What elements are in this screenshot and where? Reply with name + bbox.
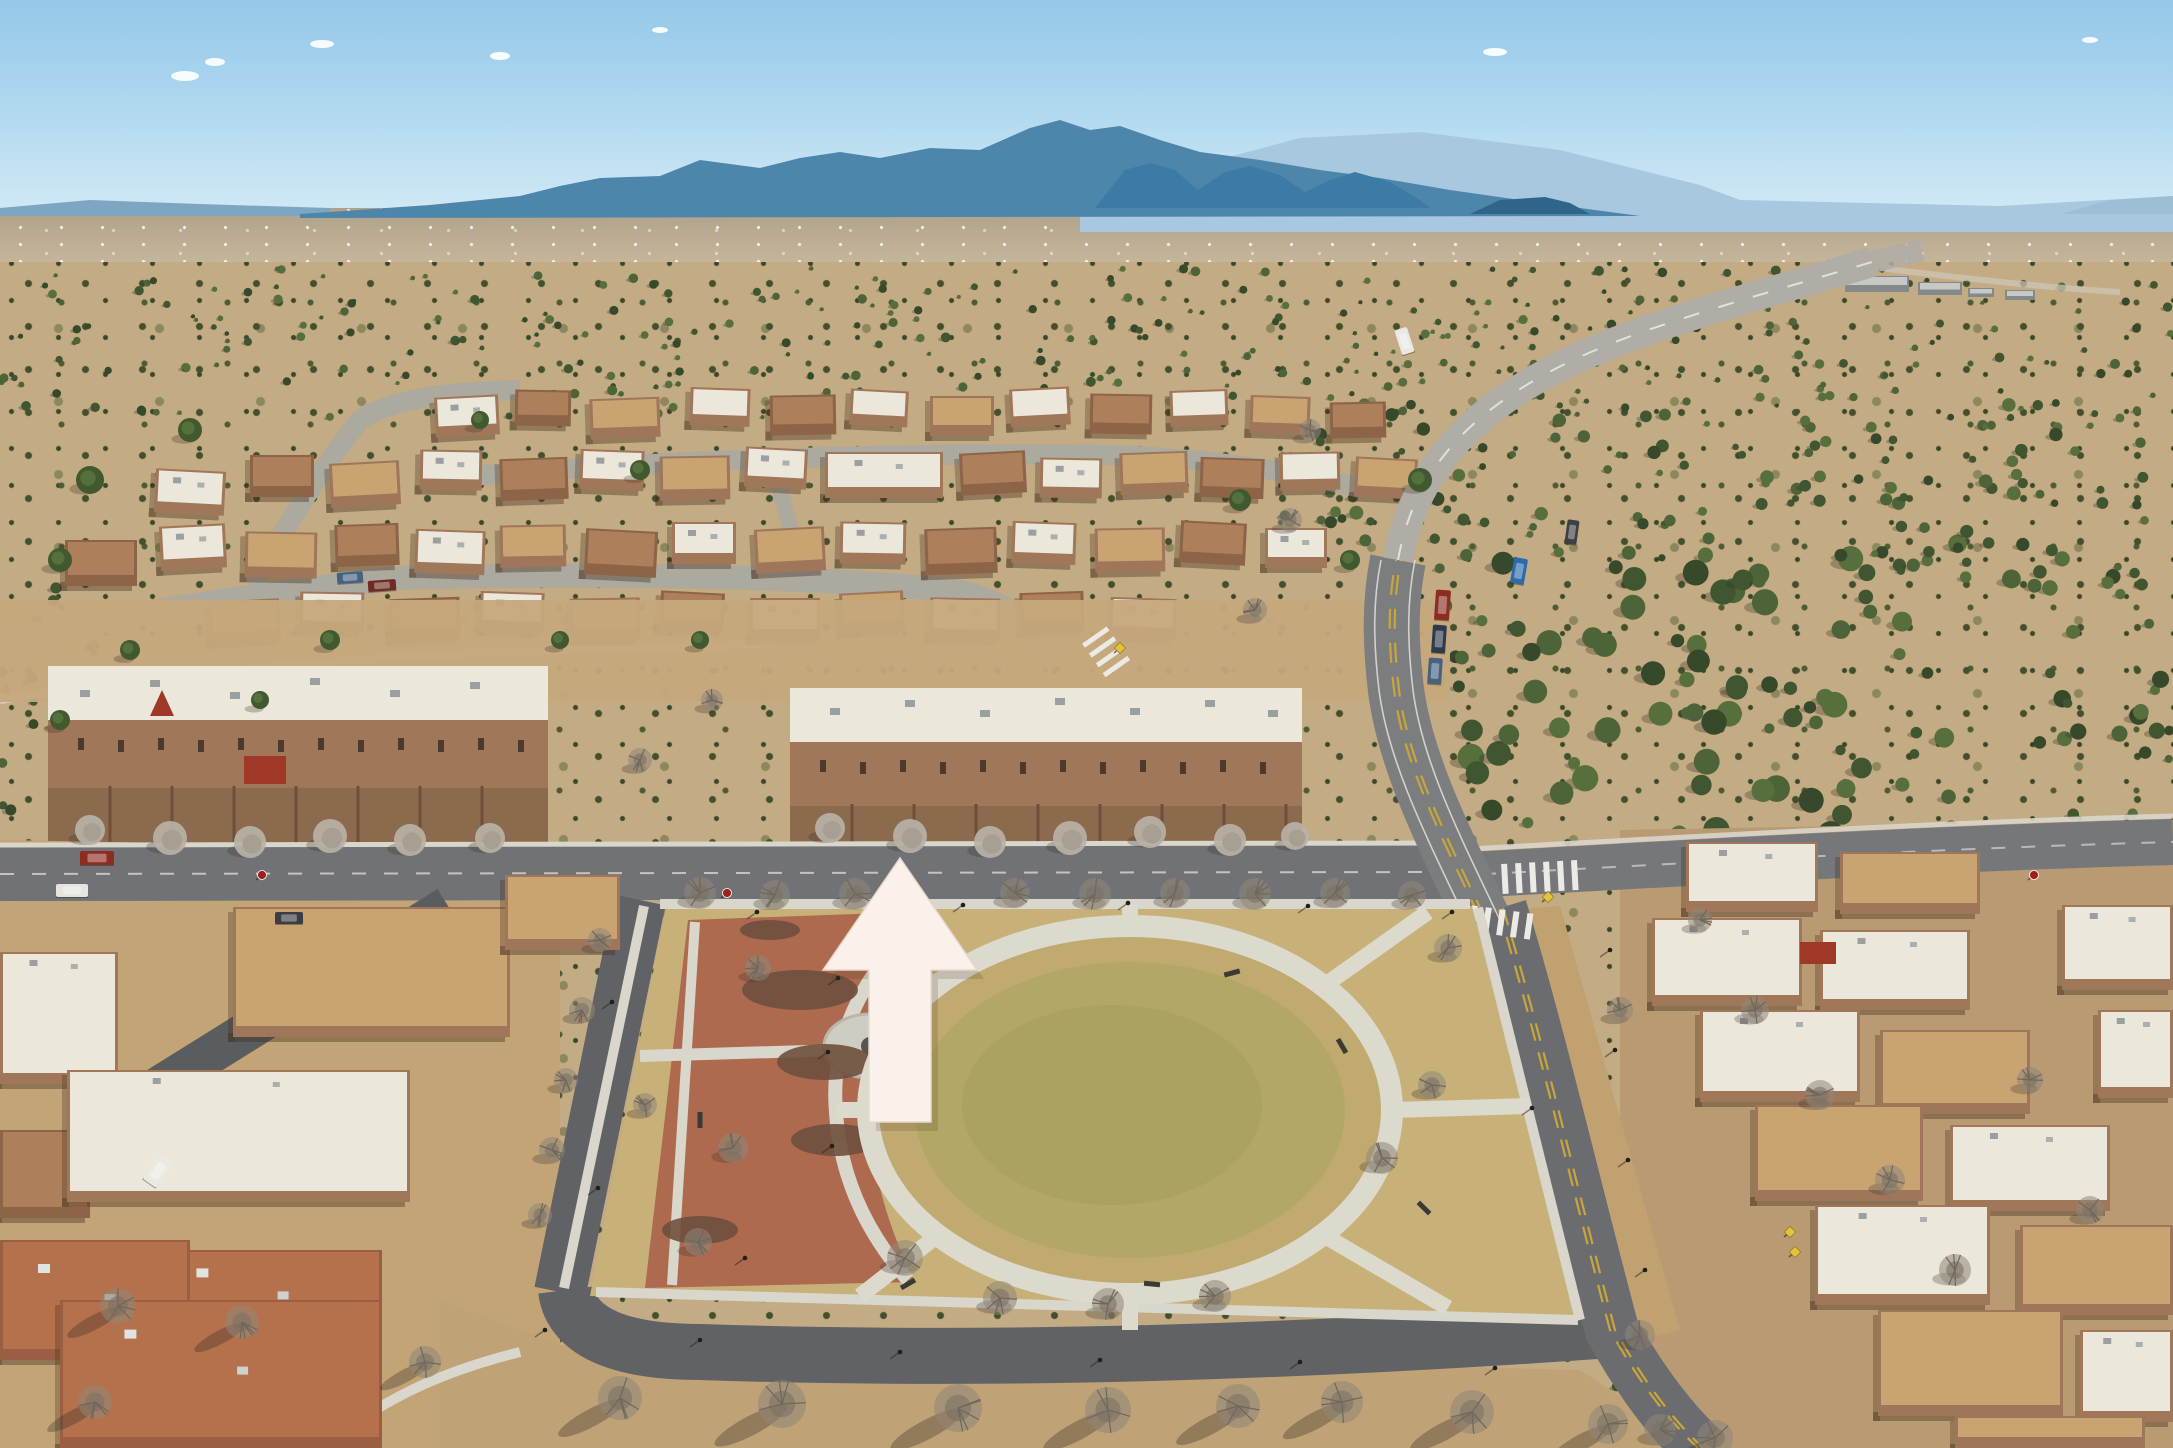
house — [1006, 521, 1077, 570]
park-lawn-center — [962, 1005, 1262, 1205]
scrub-bush — [840, 373, 849, 380]
cloud — [490, 52, 510, 60]
scrub-bush — [17, 334, 24, 339]
scrub-bush — [1510, 276, 1518, 282]
scrub-bush — [2042, 544, 2058, 556]
scrub-bush — [1477, 644, 1495, 658]
scrub-bush — [1886, 435, 1897, 444]
scrub-bush — [1418, 329, 1430, 338]
scrub-bush — [2080, 347, 2088, 353]
scrub-bush — [2033, 490, 2045, 499]
juniper-tree — [171, 418, 202, 444]
bare-tree — [1600, 997, 1633, 1024]
scrub-bush — [670, 340, 680, 348]
scrub-bush — [2112, 563, 2122, 571]
house — [1681, 842, 1818, 917]
cloud — [2082, 37, 2098, 43]
scrub-bush — [1351, 343, 1359, 349]
scrub-bush — [1550, 547, 1564, 557]
scrub-bush — [1869, 550, 1878, 557]
scrub-bush — [1426, 534, 1439, 544]
house — [579, 528, 659, 583]
scrub-bush — [1012, 269, 1018, 273]
scrub-bush — [1623, 277, 1631, 283]
scrub-bush — [2141, 619, 2154, 629]
scrub-bush — [690, 329, 698, 335]
scrub-bush — [2113, 413, 2125, 422]
scrub-bush — [2132, 437, 2146, 447]
house — [495, 524, 567, 572]
car — [368, 579, 397, 593]
scrub-bush — [784, 352, 790, 356]
car — [1394, 327, 1415, 357]
house — [844, 388, 909, 432]
scrub-bush — [1778, 708, 1803, 727]
scrub-bush — [1921, 475, 1934, 485]
scrub-bush — [1800, 701, 1816, 713]
cloud — [1483, 48, 1507, 56]
scrub-bush — [1721, 269, 1731, 277]
scrub-bush — [855, 294, 867, 303]
scrub-bush — [2094, 486, 2104, 494]
house — [667, 522, 736, 569]
scrub-bush — [1812, 359, 1824, 368]
scrub-bush — [221, 346, 230, 353]
scrub-bush — [1992, 353, 2005, 363]
scrub-bush — [1432, 563, 1445, 573]
scrub-bush — [40, 282, 48, 288]
scrub-bush — [1916, 522, 1930, 533]
scrub-bush — [1517, 643, 1541, 661]
car — [1427, 658, 1443, 686]
scrub-bush — [1934, 320, 1944, 328]
scrub-bush — [1483, 299, 1491, 305]
scrub-bush — [210, 287, 217, 292]
townhouse-roof — [48, 666, 548, 720]
scrub-bush — [1396, 378, 1408, 387]
house — [739, 446, 808, 494]
scrub-bush — [1736, 451, 1746, 459]
house — [1090, 527, 1166, 577]
scrub-bush — [626, 273, 638, 283]
scrub-bush — [1348, 391, 1355, 396]
house — [655, 455, 731, 505]
scrub-bush — [1744, 589, 1778, 615]
scrub-bush — [1362, 277, 1370, 283]
scrub-bush — [1524, 531, 1533, 538]
scrub-bush — [1600, 289, 1606, 294]
scrub-bush — [1033, 356, 1046, 366]
scrub-bush — [2029, 400, 2043, 410]
scrub-bush — [1470, 341, 1479, 348]
scrub-bush — [2085, 422, 2094, 429]
scrub-bush — [1644, 365, 1650, 370]
scrub-bush — [2119, 298, 2130, 306]
mountain-far-left-ridge — [0, 200, 330, 216]
scrub-bush — [1832, 745, 1845, 755]
cloud — [652, 27, 668, 33]
scrub-bush — [956, 382, 968, 391]
scrub-bush — [663, 381, 673, 389]
house — [1815, 930, 1970, 1015]
scrub-bush — [1847, 393, 1858, 401]
scrub-bush — [1791, 788, 1824, 813]
scrub-bush — [1587, 717, 1621, 743]
scrub-bush — [1854, 590, 1873, 605]
scrub-bush — [1364, 517, 1375, 525]
scrub-bush — [1851, 474, 1863, 483]
lamppost — [1605, 1048, 1617, 1057]
house — [1835, 852, 1980, 919]
scrub-bush — [1401, 360, 1412, 368]
scrub-bush — [533, 332, 539, 336]
scrub-bush — [848, 371, 860, 380]
scrub-bush — [1759, 375, 1769, 383]
scrub-bush — [2160, 302, 2172, 311]
scrub-bush — [1891, 778, 1909, 792]
scrub-bush — [1248, 348, 1256, 354]
scrub-bush — [1390, 350, 1396, 354]
scrub-bush — [1473, 310, 1480, 315]
scrub-bush — [213, 362, 219, 367]
scrub-bush — [1226, 392, 1237, 400]
scrub-bush — [1956, 525, 1973, 538]
scrub-bush — [1957, 571, 1972, 582]
cloud — [171, 71, 199, 81]
scrub-bush — [1574, 389, 1581, 394]
scrub-bush — [2162, 755, 2173, 763]
scrub-bush — [759, 415, 765, 419]
bare-tree — [562, 997, 595, 1024]
scrub-bush — [1845, 758, 1872, 779]
scrub-bush — [2042, 668, 2055, 678]
scrub-bush — [1527, 523, 1537, 531]
scrub-bush — [2135, 746, 2151, 758]
scrub-bush — [779, 338, 791, 347]
scrub-bush — [1641, 702, 1672, 726]
scrub-bush — [224, 339, 230, 344]
scrub-bush — [1280, 302, 1290, 309]
scrub-bush — [873, 341, 883, 349]
cloud — [310, 40, 334, 48]
scrub-bush — [1643, 446, 1660, 459]
scrub-bush — [2089, 410, 2098, 417]
house — [1325, 402, 1387, 444]
scrub-bush — [1911, 361, 1919, 367]
scrub-bush — [1475, 443, 1487, 453]
scrub-bush — [646, 280, 657, 289]
house — [415, 449, 483, 495]
scrub-bush — [70, 325, 81, 333]
scrub-bush — [1745, 779, 1775, 802]
scrub-bush — [1836, 359, 1847, 368]
house — [820, 452, 943, 503]
scrub-bush — [1618, 546, 1636, 560]
house — [835, 521, 907, 569]
distant-road — [1880, 268, 2120, 292]
scrub-bush — [2026, 355, 2034, 361]
scrub-bush — [344, 328, 355, 336]
house — [684, 387, 750, 432]
scrub-bush — [400, 372, 410, 380]
scrub-bush — [337, 365, 348, 373]
scrub-bush — [1802, 448, 1813, 457]
scrub-bush — [1967, 456, 1976, 463]
scrub-bush — [886, 318, 898, 327]
scrub-bush — [1224, 384, 1229, 388]
scrub-bush — [422, 274, 428, 279]
scrub-bush — [2017, 406, 2024, 412]
house — [1085, 393, 1153, 439]
scrub-bush — [272, 284, 279, 289]
scrub-bush — [1680, 650, 1710, 673]
car — [1564, 519, 1579, 545]
scrub-bush — [2107, 359, 2120, 369]
scrub-bush — [394, 381, 399, 385]
scrub-bush — [451, 289, 458, 294]
scrub-bush — [1065, 335, 1074, 342]
scrub-bush — [1140, 334, 1148, 340]
scrub-bush — [543, 315, 554, 324]
scrub-bush — [1675, 672, 1695, 687]
scrub-bush — [852, 322, 860, 328]
scrub-bush — [1890, 648, 1906, 660]
scrub-bush — [320, 274, 326, 278]
scrub-bush — [819, 307, 824, 311]
scrub-bush — [575, 359, 583, 365]
scrub-bush — [26, 719, 39, 729]
scrub-bush — [912, 306, 923, 314]
scrub-bush — [1656, 554, 1665, 561]
scrub-bush — [1920, 546, 1935, 557]
scrub-bush — [1892, 521, 1907, 532]
scrub-bush — [1477, 463, 1486, 470]
scrub-bush — [1633, 295, 1644, 304]
townhouse-walls — [48, 718, 548, 788]
scrub-bush — [1677, 460, 1689, 469]
scrub-bush — [0, 758, 7, 768]
scrub-bush — [1910, 345, 1918, 352]
scrub-bush — [1764, 321, 1774, 329]
scrub-bush — [1675, 373, 1682, 378]
scrub-bush — [1996, 570, 2021, 589]
scrub-bush — [660, 344, 668, 350]
car — [1431, 625, 1447, 655]
scrub-bush — [1188, 267, 1200, 277]
scrub-bush — [1036, 348, 1043, 353]
scrub-bush — [1620, 266, 1628, 272]
scrub-bush — [318, 315, 323, 319]
scrub-bush — [2112, 589, 2126, 599]
scrub-bush — [2138, 516, 2149, 525]
house — [1950, 1416, 2145, 1448]
scrub-bush — [1979, 537, 1994, 548]
scrub-bush — [1373, 352, 1379, 356]
scrub-bush — [1088, 335, 1095, 340]
house — [324, 460, 401, 513]
scrub-bush — [876, 285, 887, 293]
scrub-bush — [1083, 377, 1096, 387]
house — [1260, 528, 1327, 573]
scrub-bush — [1485, 552, 1515, 575]
scrub-bush — [912, 316, 920, 322]
scrub-bush — [2049, 499, 2059, 507]
scrub-bush — [666, 403, 677, 412]
scrub-bush — [338, 307, 349, 315]
scrub-bush — [2030, 736, 2046, 749]
scrub-bush — [2148, 392, 2155, 398]
scrub-bush — [2074, 308, 2081, 314]
scrub-bush — [1516, 315, 1528, 324]
scrub-bush — [1996, 388, 2003, 394]
scrub-bush — [2122, 370, 2132, 378]
scrub-bush — [1449, 681, 1464, 693]
scrub-bush — [2148, 281, 2158, 289]
house — [409, 529, 486, 581]
scrub-bush — [1493, 724, 1520, 744]
scrub-bush — [869, 303, 875, 307]
house — [245, 455, 314, 502]
scrub-bush — [223, 331, 229, 336]
scrub-bush — [747, 366, 759, 375]
scrub-bush — [1668, 295, 1677, 302]
scrub-bush — [1499, 346, 1504, 350]
house — [1004, 386, 1071, 432]
scrub-bush — [617, 391, 624, 397]
scrub-bush — [1473, 615, 1487, 626]
scrub-bush — [1945, 414, 1954, 421]
scrub-bush — [1959, 558, 1971, 568]
curve-road-tip — [1872, 250, 1922, 262]
scrub-bush — [1314, 516, 1325, 525]
house — [149, 468, 226, 521]
scrub-bush — [1516, 680, 1547, 704]
scrub-bush — [1756, 676, 1778, 693]
scrub-bush — [1338, 309, 1348, 316]
scrub-bush — [1863, 422, 1877, 433]
scrub-bush — [1507, 451, 1516, 458]
scrub-bush — [2132, 578, 2148, 590]
scrub-bush — [1699, 532, 1714, 544]
house — [1174, 520, 1247, 571]
scrub-bush — [1396, 448, 1405, 455]
scrub-bush — [1752, 498, 1767, 510]
scrub-bush — [1582, 398, 1589, 403]
scrub-bush — [1906, 749, 1919, 759]
house — [154, 523, 227, 576]
scrub-bush — [674, 381, 681, 387]
scrub-bush — [1756, 470, 1774, 484]
scrub-bush — [750, 288, 761, 296]
scrub-bush — [2065, 723, 2086, 739]
aerial-photo-scene — [0, 0, 2173, 1448]
car — [337, 571, 364, 585]
scrub-bush — [1264, 295, 1273, 302]
scrub-bush — [805, 373, 814, 380]
scrub-bush — [151, 409, 160, 416]
scrub-bush — [1677, 707, 1692, 719]
scrub-bush — [1918, 667, 1933, 679]
scrub-bush — [978, 358, 986, 364]
scrub-bush — [190, 314, 195, 318]
house — [749, 526, 826, 579]
scrub-bush — [2129, 324, 2140, 333]
scrub-bush — [561, 364, 573, 373]
scrub-bush — [1573, 412, 1580, 417]
scrub-bush — [1475, 800, 1502, 821]
scrub-bush — [1381, 382, 1392, 391]
scrub-bush — [52, 273, 57, 277]
juniper-tree — [69, 466, 104, 495]
central-park — [564, 904, 1580, 1330]
scrub-bush — [639, 331, 649, 339]
house — [2093, 1010, 2173, 1103]
scrub-bush — [1198, 310, 1204, 315]
house — [954, 450, 1027, 501]
scrub-bush — [1761, 723, 1774, 733]
scrub-bush — [45, 290, 56, 299]
scrub-bush — [1785, 499, 1795, 506]
scrub-bush — [757, 296, 766, 303]
scrub-bush — [216, 315, 224, 321]
scrub-bush — [1505, 621, 1526, 637]
scrub-bush — [1614, 451, 1623, 458]
house — [584, 397, 661, 445]
scrub-bush — [1527, 344, 1536, 351]
scrub-bush — [972, 373, 981, 380]
scrub-bush — [1353, 370, 1358, 374]
scrub-bush — [1549, 414, 1566, 427]
scrub-bush — [50, 389, 61, 398]
house — [429, 394, 500, 443]
scrub-bush — [1576, 627, 1603, 648]
scrub-bush — [1409, 307, 1417, 313]
scrub-bush — [1543, 717, 1570, 738]
scrub-bush — [871, 276, 878, 281]
scrub-bush — [1605, 560, 1623, 574]
scrub-bush — [1528, 327, 1539, 335]
scrub-bush — [405, 349, 413, 355]
scrub-bush — [922, 288, 931, 295]
scrub-bush — [1160, 296, 1167, 301]
juniper-tree — [1334, 550, 1361, 573]
scrub-bush — [0, 373, 9, 382]
clouds — [171, 27, 2098, 81]
scrub-bush — [53, 356, 62, 363]
scrub-bush — [241, 288, 252, 297]
scrub-bush — [1645, 380, 1652, 385]
scrub-bush — [18, 401, 31, 411]
house — [0, 952, 118, 1089]
townhouse-walls — [790, 740, 1302, 806]
scrub-bush — [324, 413, 334, 421]
scrub-bush — [1300, 377, 1311, 385]
scrub-bush — [345, 299, 356, 308]
scrub-bush — [552, 321, 562, 329]
house — [1164, 389, 1228, 432]
scrub-bush — [478, 346, 484, 351]
house — [1647, 918, 1802, 1011]
main-street-front — [0, 872, 1455, 874]
scrub-bush — [1685, 775, 1712, 796]
scrub-bush — [1613, 595, 1645, 620]
scrub-bush — [542, 312, 548, 317]
scrub-bush — [2129, 500, 2141, 509]
scrub-bush — [271, 295, 283, 304]
scrub-bush — [1601, 465, 1612, 474]
scrub-bush — [2165, 330, 2173, 337]
scrub-bush — [823, 340, 831, 346]
